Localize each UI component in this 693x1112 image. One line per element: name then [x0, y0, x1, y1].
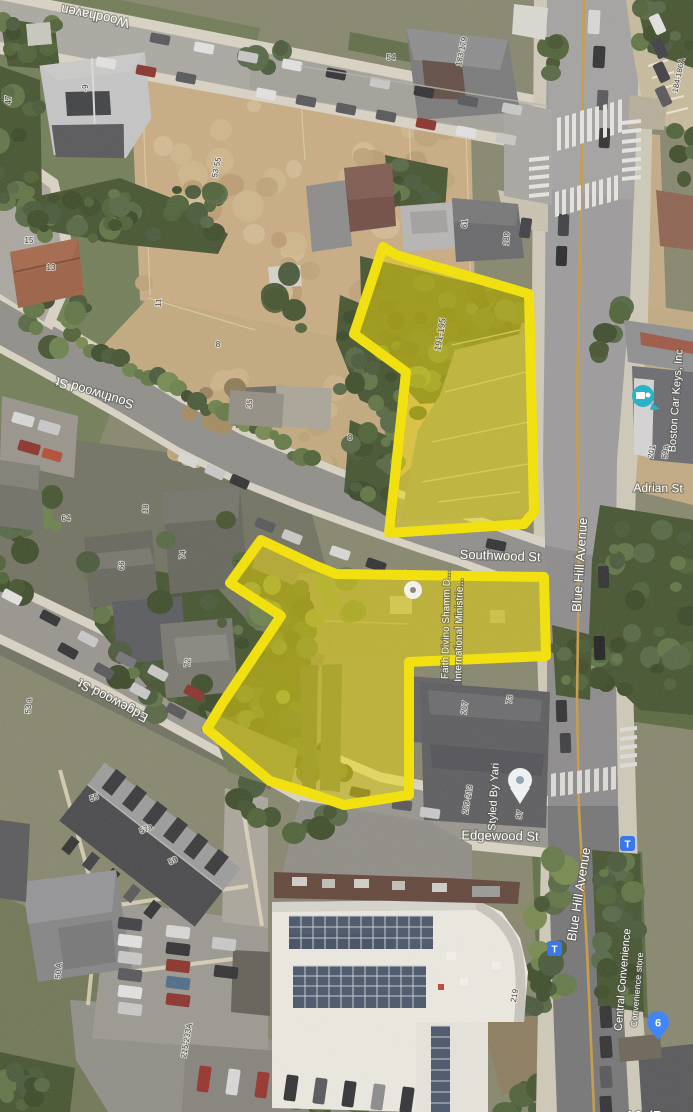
svg-text:Edgewood St: Edgewood St: [461, 827, 539, 843]
svg-text:53 a: 53 a: [23, 697, 33, 714]
svg-text:T: T: [551, 945, 557, 956]
svg-text:8: 8: [348, 433, 353, 442]
svg-text:64: 64: [62, 514, 71, 523]
svg-text:International Ministrie...: International Ministrie...: [453, 578, 466, 682]
svg-text:Adrian St: Adrian St: [633, 481, 683, 496]
svg-text:59a: 59a: [660, 444, 670, 459]
svg-text:189: 189: [501, 231, 511, 246]
svg-text:66: 66: [117, 560, 127, 570]
svg-text:72: 72: [183, 657, 193, 667]
svg-text:8: 8: [216, 340, 221, 349]
svg-text:Southwood St: Southwood St: [459, 547, 541, 565]
svg-text:Faith Divino Shamm D...: Faith Divino Shamm D...: [440, 571, 453, 680]
svg-text:15: 15: [25, 236, 34, 245]
svg-text:18: 18: [141, 503, 151, 513]
svg-text:61: 61: [460, 218, 470, 228]
svg-text:47: 47: [4, 95, 13, 104]
svg-text:11: 11: [154, 298, 164, 308]
svg-text:-9: -9: [81, 84, 90, 92]
svg-text:50 A: 50 A: [53, 962, 63, 979]
svg-text:74: 74: [178, 549, 188, 559]
svg-text:13: 13: [47, 263, 56, 272]
svg-text:T: T: [624, 840, 630, 851]
svg-text:6: 6: [655, 1018, 661, 1030]
svg-text:35: 35: [245, 398, 255, 408]
svg-text:54: 54: [387, 53, 396, 62]
